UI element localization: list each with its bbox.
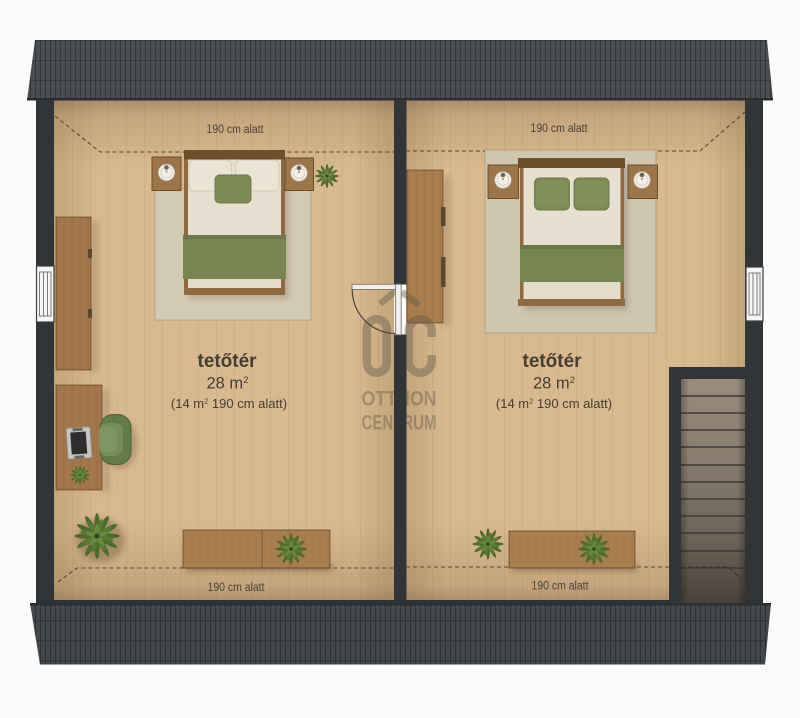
svg-text:tetőtér: tetőtér [198, 350, 257, 372]
svg-text:tetőtér: tetőtér [523, 350, 582, 372]
svg-text:(14 m2 190 cm alatt): (14 m2 190 cm alatt) [171, 396, 287, 411]
svg-text:(14 m2 190 cm alatt): (14 m2 190 cm alatt) [496, 396, 612, 411]
svg-text:190 cm alatt: 190 cm alatt [532, 581, 590, 593]
svg-text:28 m2: 28 m2 [207, 375, 249, 393]
svg-text:190 cm alatt: 190 cm alatt [207, 124, 265, 136]
svg-text:28 m2: 28 m2 [533, 375, 575, 393]
svg-text:190 cm alatt: 190 cm alatt [531, 123, 589, 135]
svg-text:190 cm alatt: 190 cm alatt [208, 582, 266, 594]
